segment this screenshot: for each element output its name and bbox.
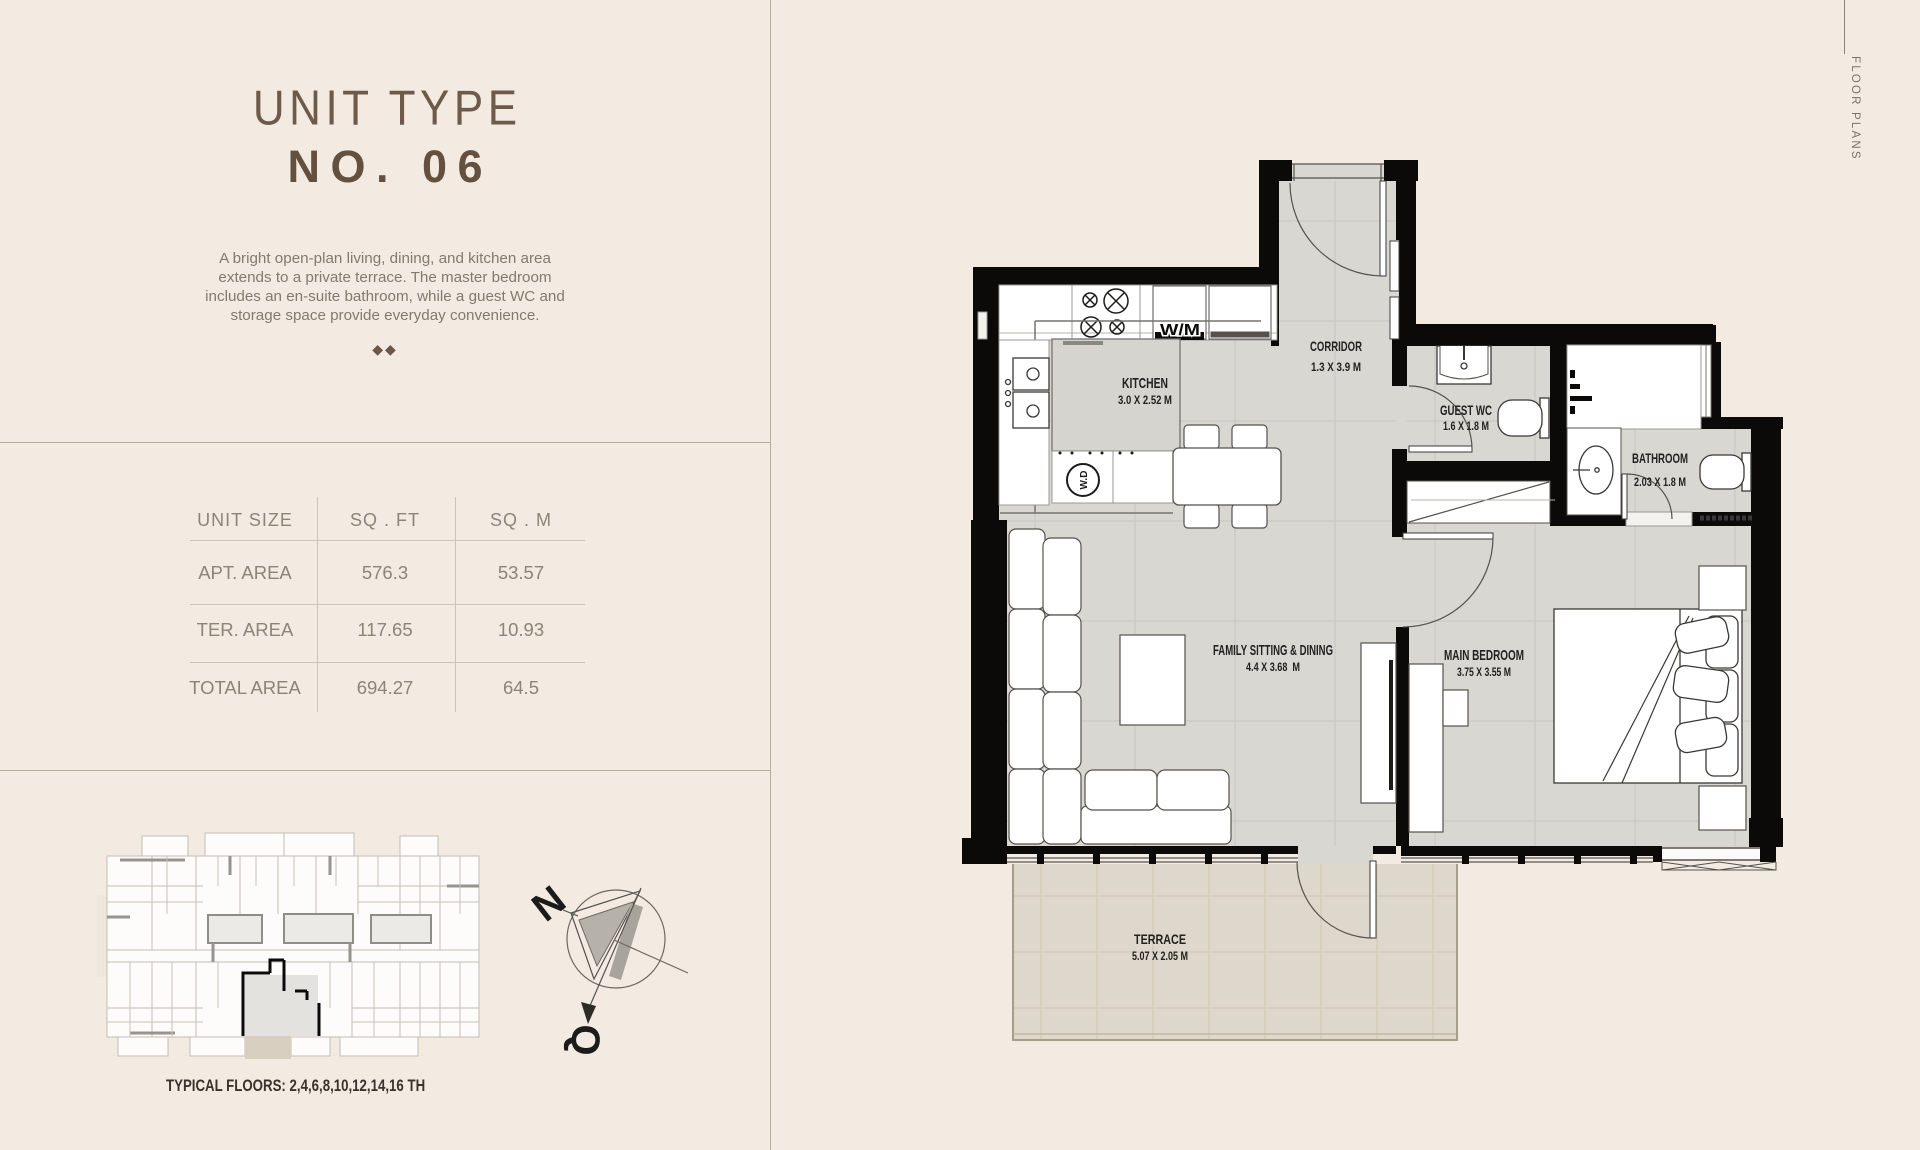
svg-text:W/M: W/M [1160, 322, 1200, 339]
svg-text:1.3 X 3.9 M: 1.3 X 3.9 M [1311, 360, 1361, 374]
svg-text:TERRACE: TERRACE [1134, 931, 1186, 947]
svg-text:CORRIDOR: CORRIDOR [1310, 338, 1362, 354]
svg-text:GUEST WC: GUEST WC [1440, 402, 1492, 418]
svg-text:3.75 X 3.55 M: 3.75 X 3.55 M [1457, 665, 1511, 679]
svg-text:Q: Q [562, 1024, 607, 1057]
svg-text:1.6 X 1.8 M: 1.6 X 1.8 M [1443, 419, 1489, 433]
svg-text:FAMILY SITTING & DINING: FAMILY SITTING & DINING [1213, 642, 1333, 659]
svg-text:5.07 X 2.05 M: 5.07 X 2.05 M [1132, 949, 1188, 963]
svg-text:BATHROOM: BATHROOM [1632, 450, 1688, 466]
svg-text:3.0 X 2.52 M: 3.0 X 2.52 M [1118, 393, 1172, 407]
svg-text:4.4 X 3.68 M: 4.4 X 3.68 M [1246, 660, 1300, 674]
svg-text:N: N [524, 878, 574, 930]
svg-text:KITCHEN: KITCHEN [1122, 375, 1168, 392]
svg-text:W.D: W.D [1079, 471, 1090, 490]
svg-text:MAIN BEDROOM: MAIN BEDROOM [1444, 647, 1524, 664]
svg-text:2.03 X 1.8 M: 2.03 X 1.8 M [1634, 475, 1686, 489]
